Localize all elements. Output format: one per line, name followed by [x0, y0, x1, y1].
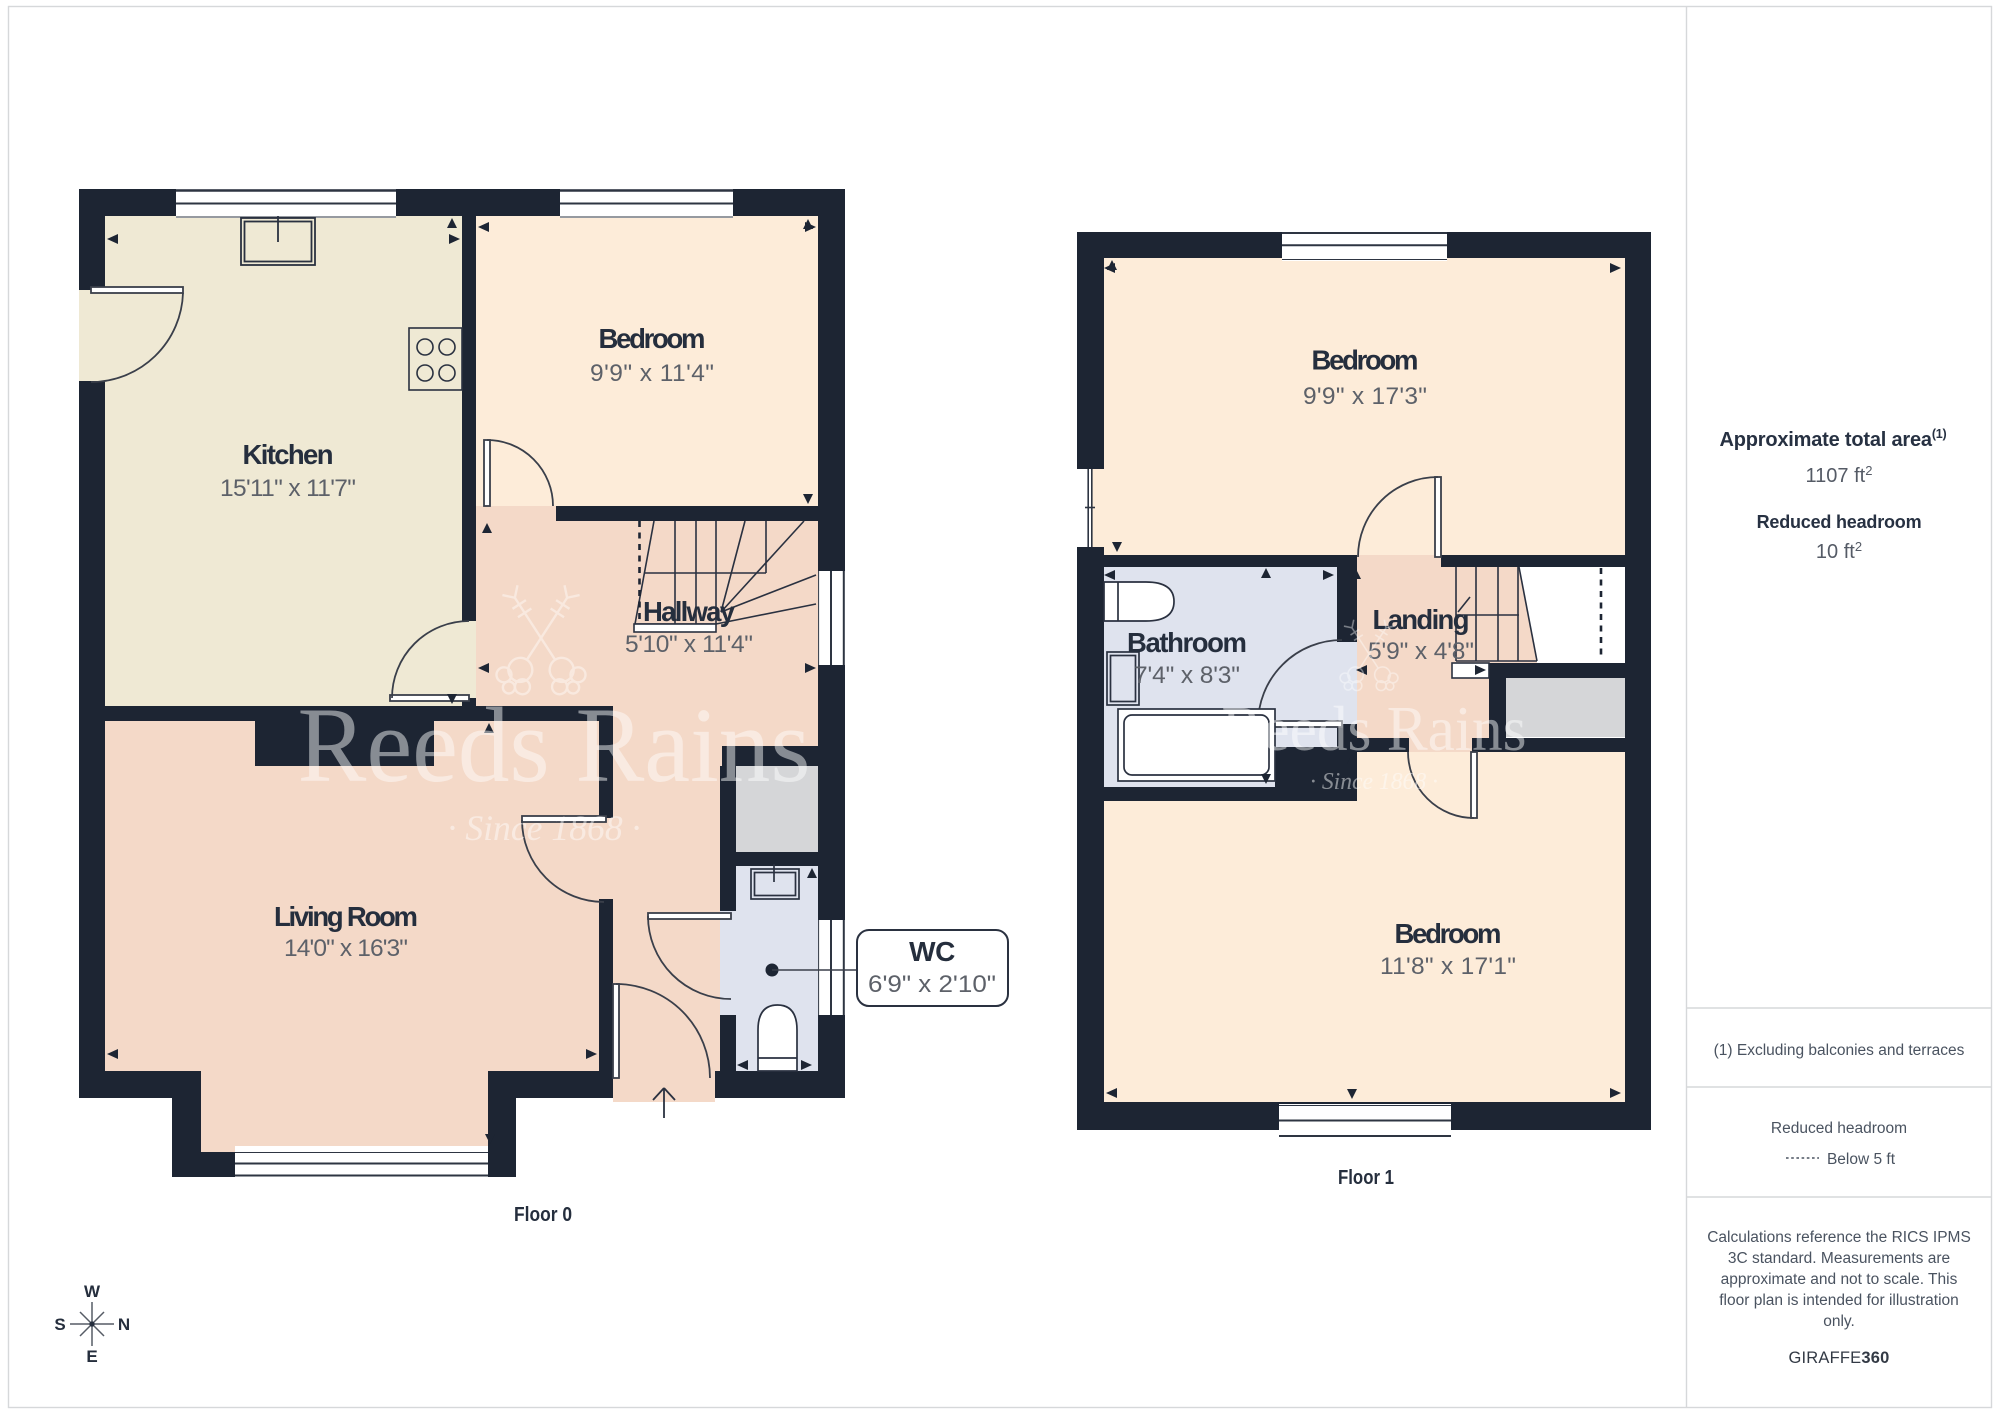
svg-text:Hallway: Hallway	[643, 596, 736, 627]
svg-text:Bedroom: Bedroom	[1312, 345, 1419, 376]
svg-text:10 ft2: 10 ft2	[1816, 539, 1862, 563]
svg-text:Bathroom: Bathroom	[1127, 627, 1247, 658]
svg-text:approximate and not to scale.: approximate and not to scale. This	[1721, 1271, 1958, 1288]
svg-text:Landing: Landing	[1373, 604, 1470, 635]
svg-text:W: W	[84, 1282, 101, 1301]
svg-text:Floor 0: Floor 0	[514, 1204, 572, 1226]
svg-text:E: E	[86, 1347, 97, 1366]
svg-text:Floor 1: Floor 1	[1338, 1167, 1394, 1189]
svg-text:6'9" x 2'10": 6'9" x 2'10"	[868, 971, 996, 998]
svg-text:5'10" x 11'4": 5'10" x 11'4"	[625, 631, 753, 658]
svg-text:GIRAFFE360: GIRAFFE360	[1788, 1349, 1889, 1367]
svg-text:Reduced headroom: Reduced headroom	[1771, 1120, 1907, 1137]
svg-text:· Since 1868 ·: · Since 1868 ·	[1310, 769, 1438, 795]
svg-text:9'9" x 17'3": 9'9" x 17'3"	[1303, 383, 1427, 410]
svg-text:9'9" x 11'4": 9'9" x 11'4"	[590, 360, 714, 387]
svg-text:Reduced headroom: Reduced headroom	[1757, 512, 1922, 532]
svg-text:only.: only.	[1823, 1313, 1855, 1330]
svg-text:7'4" x 8'3": 7'4" x 8'3"	[1134, 662, 1240, 689]
svg-text:5'9" x 4'8": 5'9" x 4'8"	[1368, 638, 1474, 665]
svg-text:11'8" x 17'1": 11'8" x 17'1"	[1380, 953, 1516, 980]
svg-text:1107 ft2: 1107 ft2	[1806, 463, 1873, 487]
svg-text:Bedroom: Bedroom	[599, 323, 706, 354]
svg-text:3C standard. Measurements are: 3C standard. Measurements are	[1728, 1250, 1950, 1267]
svg-text:Calculations reference the RIC: Calculations reference the RICS IPMS	[1707, 1229, 1971, 1246]
svg-text:Kitchen: Kitchen	[243, 439, 334, 470]
svg-text:floor plan is intended for ill: floor plan is intended for illustration	[1719, 1292, 1959, 1309]
svg-text:WC: WC	[909, 936, 955, 967]
svg-text:N: N	[118, 1315, 130, 1334]
svg-text:Reeds Rains: Reeds Rains	[298, 687, 811, 805]
svg-text:15'11" x 11'7": 15'11" x 11'7"	[220, 475, 356, 502]
svg-text:(1) Excluding balconies and te: (1) Excluding balconies and terraces	[1714, 1042, 1965, 1059]
svg-text:Living Room: Living Room	[274, 901, 418, 932]
svg-text:Reeds Rains: Reeds Rains	[1222, 694, 1527, 764]
svg-text:S: S	[54, 1315, 65, 1334]
svg-text:Bedroom: Bedroom	[1395, 918, 1502, 949]
svg-text:Below 5 ft: Below 5 ft	[1827, 1151, 1896, 1168]
svg-text:14'0" x 16'3": 14'0" x 16'3"	[284, 935, 408, 962]
svg-text:Approximate total area(1): Approximate total area(1)	[1719, 427, 1946, 451]
svg-text:· Since 1868 ·: · Since 1868 ·	[448, 808, 641, 848]
